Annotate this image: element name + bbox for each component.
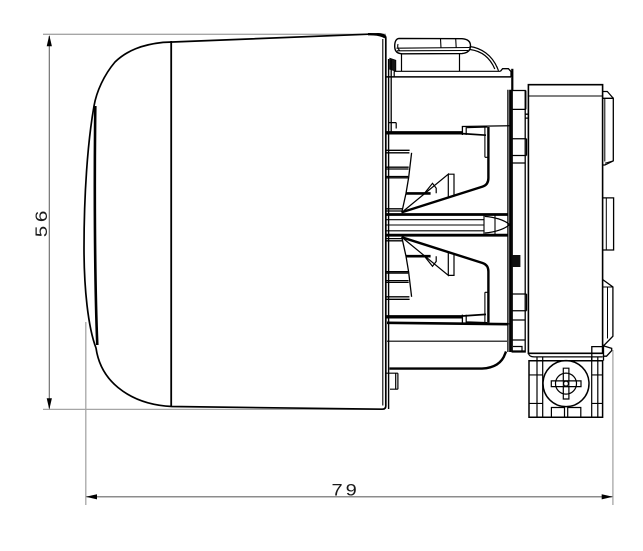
svg-text:79: 79: [332, 480, 360, 499]
svg-text:56: 56: [33, 207, 52, 237]
